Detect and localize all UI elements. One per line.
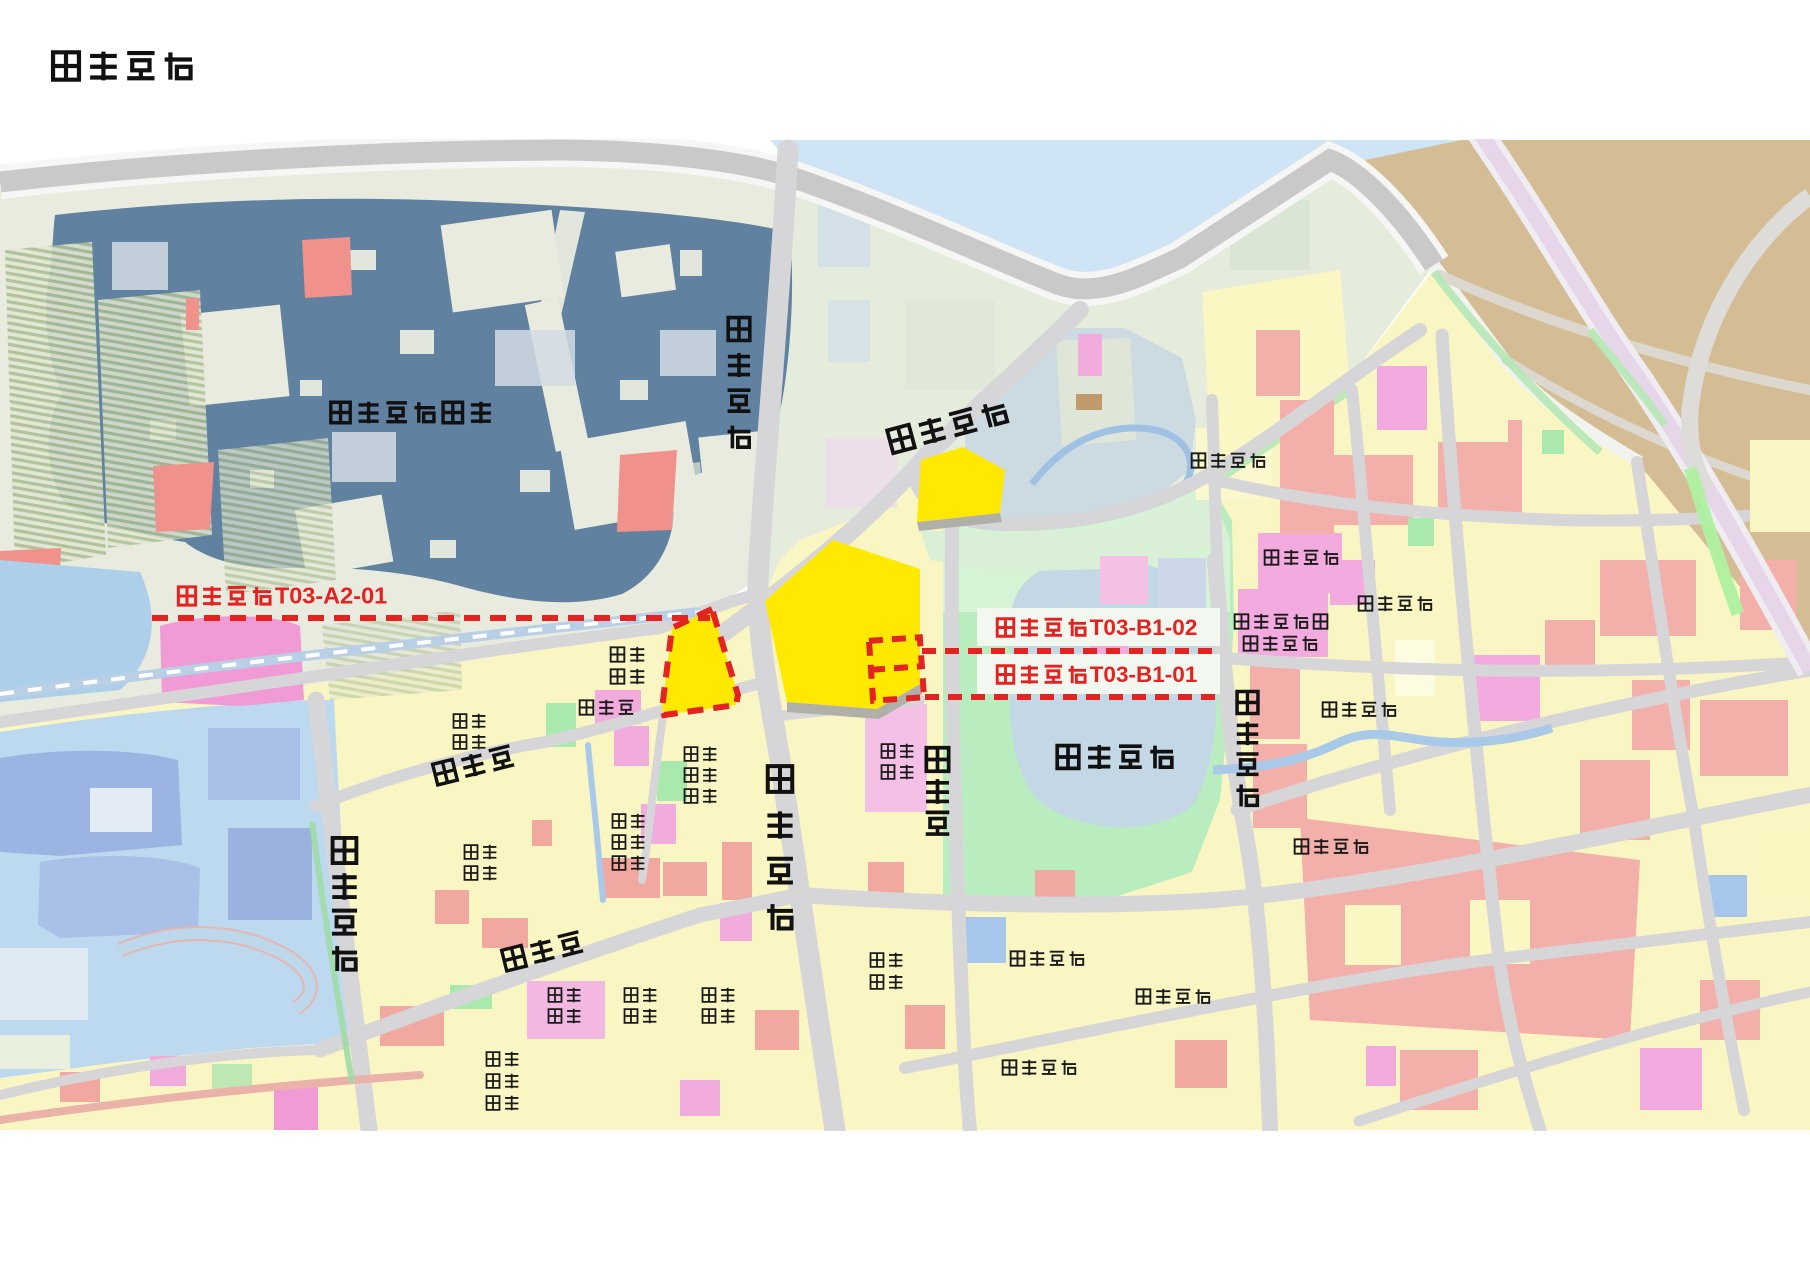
svg-text:T03-B1-01: T03-B1-01: [1090, 662, 1198, 687]
svg-text:T03-B1-02: T03-B1-02: [1090, 615, 1198, 640]
svg-text:T03-A2-01: T03-A2-01: [275, 583, 387, 609]
